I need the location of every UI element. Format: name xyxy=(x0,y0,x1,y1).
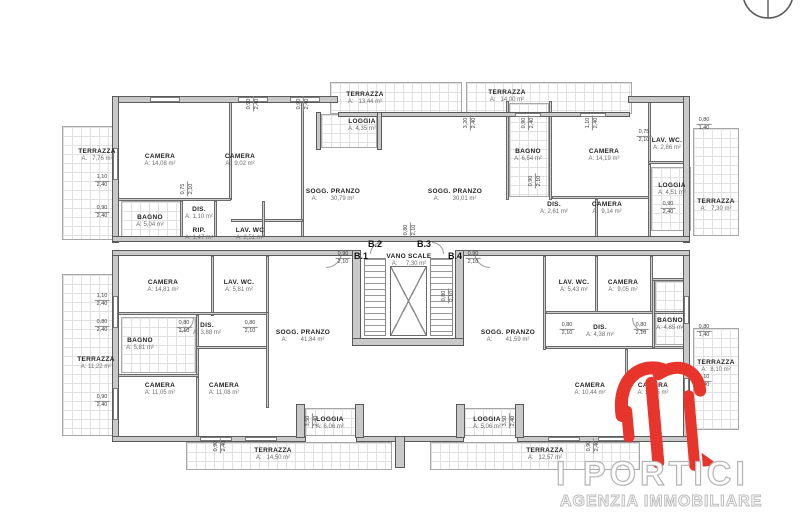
partition-wall xyxy=(546,311,686,314)
room-label: LOGGIAA: 6,06 m² xyxy=(316,416,344,430)
window-marker xyxy=(245,437,277,441)
unit-label: B.4 xyxy=(448,251,462,261)
room-label: VANO SCALEA: 7,30 m² xyxy=(386,253,431,267)
dimension-label: 3,502,40 xyxy=(502,414,516,429)
dimension-width: 0,90 xyxy=(95,205,110,212)
dimension-label: 0,802,10 xyxy=(243,320,258,334)
dimension-width: 0,80 xyxy=(403,223,410,238)
room-area: A: 2,86 m² xyxy=(652,145,683,151)
room-area: A: 41,59 m² xyxy=(481,337,535,343)
room-name: CAMERA xyxy=(225,153,255,160)
room-label: BAGNOA: 5,81 m² xyxy=(126,337,154,351)
dimension-height: 1,40 xyxy=(697,124,712,132)
window-marker xyxy=(684,296,689,324)
dimension-width: 0,90 xyxy=(661,201,676,208)
dimension-height: 2,10 xyxy=(448,289,456,304)
dimension-label: 0,802,10 xyxy=(560,322,575,336)
room-area: A: 30,79 m² xyxy=(306,196,360,202)
room-name: SOGG. PRANZO xyxy=(481,329,535,336)
room-name: LAV. WC. xyxy=(559,279,590,286)
unit-label: B.2 xyxy=(368,239,382,249)
dimension-width: 0,80 xyxy=(441,289,448,304)
room-area: A: 14,08 m² xyxy=(144,161,175,167)
room-name: TERRAZZA xyxy=(78,148,115,155)
room-label: LAV. WC.A: 5,81 m² xyxy=(224,279,255,293)
room-name: TERRAZZA xyxy=(77,356,114,363)
room-label: LOGGIAA: 4,35 m² xyxy=(348,118,376,132)
room-area: A: 9,02 m² xyxy=(225,161,255,167)
dimension-label: 1,102,40 xyxy=(95,293,110,307)
pier xyxy=(355,404,364,438)
room-name: LAV. WC. xyxy=(652,137,683,144)
dimension-label: 0,902,40 xyxy=(246,97,260,112)
window-marker xyxy=(113,296,118,328)
dimension-height: 2,40 xyxy=(528,116,536,131)
stair-core-wall xyxy=(352,250,361,346)
dimension-label: 0,902,10 xyxy=(336,251,351,265)
dimension-height: 2,10 xyxy=(560,329,575,337)
agency-logo-title: I PORTICI xyxy=(556,455,749,494)
dimension-height: 2,40 xyxy=(303,97,311,112)
room-name: SOGG. PRANZO xyxy=(306,188,360,195)
room-area: A: 11,08 m² xyxy=(209,390,240,396)
dimension-width: 0,75 xyxy=(180,182,187,197)
dimension-width: 0,80 xyxy=(560,322,575,329)
room-label: SOGG. PRANZOA: 30,79 m² xyxy=(306,188,360,202)
stair-flight xyxy=(364,258,386,336)
room-area: A: 14,81 m² xyxy=(147,287,178,293)
dimension-width: 0,75 xyxy=(637,129,652,136)
room-label: DIS.A: 3,88 m² xyxy=(193,322,221,336)
partition-wall xyxy=(595,256,598,313)
dimension-height: 2,10 xyxy=(243,327,258,335)
room-label: CAMERAA: 9,02 m² xyxy=(225,153,255,167)
room-name: CAMERA xyxy=(574,382,605,389)
room-label: BAGNOA: 4,85 m² xyxy=(656,317,684,331)
room-area: A: 14,19 m² xyxy=(588,156,619,162)
room-area: A: 4,85 m² xyxy=(656,325,684,331)
dimension-label: 1,102,40 xyxy=(585,116,599,131)
room-name: TERRAZZA xyxy=(346,91,383,98)
partition-wall xyxy=(231,219,303,222)
dimension-label: 0,902,40 xyxy=(661,201,676,215)
room-label: TERRAZZAA: 14,00 m² xyxy=(488,89,525,103)
room-name: DIS. xyxy=(193,322,221,329)
dimension-label: 0,902,40 xyxy=(296,97,310,112)
room-label: DIS.A: 4,38 m² xyxy=(586,324,614,338)
room-name: VANO SCALE xyxy=(386,253,431,260)
room-label: BAGNOA: 5,04 m² xyxy=(136,214,164,228)
room-name: BAGNO xyxy=(656,317,684,324)
room-area: A: 6,06 m² xyxy=(316,424,344,430)
pier xyxy=(296,404,305,438)
dimension-label: 0,802,10 xyxy=(441,289,455,304)
dimension-width: 3,50 xyxy=(502,414,509,429)
dimension-height: 2,40 xyxy=(220,439,228,454)
dimension-width: 0,90 xyxy=(528,174,535,189)
room-name: DIS. xyxy=(586,324,614,331)
room-area: A: 10,44 m² xyxy=(574,390,605,396)
dimension-width: 0,80 xyxy=(177,320,192,327)
dimension-height: 2,10 xyxy=(336,258,351,266)
partition-wall xyxy=(214,201,217,238)
room-name: TERRAZZA xyxy=(488,89,525,96)
room-area: A: 4,38 m² xyxy=(586,332,614,338)
dimension-width: 0,90 xyxy=(95,394,110,401)
room-name: LOGGIA xyxy=(348,118,376,125)
dimension-width: 0,90 xyxy=(336,251,351,258)
dimension-width: 0,80 xyxy=(697,324,712,331)
partition-wall xyxy=(211,256,214,316)
dimension-height: 2,40 xyxy=(95,326,110,334)
floor-plan-canvas: TERRAZZAA. 7,76 m²CAMERAA: 14,08 m²CAMER… xyxy=(0,0,800,526)
room-area: A: 5,81 m² xyxy=(126,345,154,351)
room-name: BAGNO xyxy=(514,148,542,155)
dimension-label: 0,902,40 xyxy=(95,205,110,219)
dimension-height: 2,10 xyxy=(637,136,652,144)
dimension-label: 0,902,10 xyxy=(466,251,481,265)
dimension-width: 0,90 xyxy=(213,439,220,454)
room-label: CAMERAA: 14,08 m² xyxy=(144,153,175,167)
dimension-label: 1,102,40 xyxy=(95,174,110,188)
room-name: DIS. xyxy=(185,206,213,213)
room-label: BAGNOA: 6,54 m² xyxy=(514,148,542,162)
dimension-label: 0,802,40 xyxy=(95,319,110,333)
dimension-width: 0,90 xyxy=(586,439,593,454)
room-label: LAV. WC.A: 5,43 m² xyxy=(559,279,590,293)
room-area: A: 7,30 m² xyxy=(386,261,431,267)
dimension-label: 3,202,40 xyxy=(463,116,477,131)
partition-wall xyxy=(266,312,269,408)
pier xyxy=(456,404,465,438)
room-name: LOGGIA xyxy=(473,416,501,423)
room-label: SOGG. PRANZOA: 41,59 m² xyxy=(481,329,535,343)
exterior-wall xyxy=(395,436,405,468)
room-area: A: 3,88 m² xyxy=(193,330,221,336)
room-name: CAMERA xyxy=(588,148,619,155)
room-label: CAMERAA: 11,08 m² xyxy=(209,382,240,396)
partition-wall xyxy=(196,346,269,349)
north-indicator-icon xyxy=(740,0,796,21)
room-area: A: 2,51 m² xyxy=(236,235,264,241)
room-area: A: 4,51 m² xyxy=(658,190,686,196)
room-area: A: 11,22 m² xyxy=(77,364,114,370)
stair-core-wall xyxy=(455,250,464,346)
partition-wall xyxy=(118,312,269,315)
room-name: LAV. WC. xyxy=(224,279,255,286)
dimension-label: 0,801,40 xyxy=(697,324,712,338)
room-label: CAMERAA: 14,81 m² xyxy=(147,279,178,293)
room-area: A: 5,04 m² xyxy=(136,222,164,228)
room-label: LOGGIAA: 4,51 m² xyxy=(658,182,686,196)
pier xyxy=(515,404,524,438)
room-area: A: 11,05 m² xyxy=(145,390,176,396)
elevator-shaft xyxy=(390,266,427,336)
terrace-area xyxy=(693,128,739,236)
partition-wall xyxy=(196,377,199,438)
room-label: LAV. WC.A: 2,86 m² xyxy=(652,137,683,151)
partition-wall xyxy=(652,278,686,281)
partition-wall xyxy=(229,101,232,200)
dimension-height: 2,10 xyxy=(466,258,481,266)
room-label: TERRAZZAA: 11,22 m² xyxy=(77,356,114,370)
dimension-label: 0,801,40 xyxy=(697,117,712,131)
room-label: CAMERAA: 14,19 m² xyxy=(588,148,619,162)
room-label: TERRAZZAA: 14,50 m² xyxy=(254,447,291,461)
partition-wall xyxy=(180,201,183,238)
dimension-height: 2,10 xyxy=(535,174,543,189)
room-area: A: 9,14 m² xyxy=(592,209,622,215)
dimension-height: 2,40 xyxy=(593,439,601,454)
room-name: TERRAZZA xyxy=(254,447,291,454)
room-area: A: 14,00 m² xyxy=(488,97,525,103)
room-label: TERRAZZAA: 13,44 m² xyxy=(346,91,383,105)
room-area: A: 9,05 m² xyxy=(608,287,638,293)
door-swing-arc xyxy=(432,242,444,254)
partition-wall xyxy=(118,374,199,377)
room-area: A: 30,01 m² xyxy=(428,196,482,202)
room-label: SOGG. PRANZOA: 30,01 m² xyxy=(428,188,482,202)
dimension-height: 2,10 xyxy=(187,182,195,197)
dimension-height: 2,40 xyxy=(253,97,261,112)
room-name: LOGGIA xyxy=(316,416,344,423)
partition-wall xyxy=(266,256,269,316)
room-area: A: 2,61 m² xyxy=(540,209,568,215)
dimension-width: 0,80 xyxy=(243,320,258,327)
room-label: DIS.A: 1,10 m² xyxy=(185,206,213,220)
room-name: SOGG. PRANZO xyxy=(428,188,482,195)
room-label: CAMERAA: 9,14 m² xyxy=(592,201,622,215)
room-label: TERRAZZAA: 7,30 m² xyxy=(697,198,734,212)
corridor-wall xyxy=(112,250,357,256)
dimension-height: 2,40 xyxy=(661,208,676,216)
room-label: TERRAZZAA. 7,76 m² xyxy=(78,148,115,162)
dimension-height: 2,40 xyxy=(470,116,478,131)
stair-core-wall xyxy=(352,338,464,346)
dimension-height: 1,40 xyxy=(697,331,712,339)
dimension-label: 0,752,10 xyxy=(637,129,652,143)
dimension-height: 2,40 xyxy=(95,401,110,409)
dimension-label: 0,902,40 xyxy=(586,439,600,454)
dimension-height: 2,40 xyxy=(592,116,600,131)
unit-label: B.3 xyxy=(417,239,431,249)
unit-label: B.1 xyxy=(354,251,368,261)
dimension-width: 1,10 xyxy=(95,293,110,300)
room-name: TERRAZZA xyxy=(697,198,734,205)
dimension-width: 0,90 xyxy=(246,97,253,112)
window-marker xyxy=(150,97,180,102)
room-area: A: 14,50 m² xyxy=(254,455,291,461)
window-marker xyxy=(113,388,118,420)
partition-wall xyxy=(543,256,546,350)
dimension-label: 0,802,10 xyxy=(177,320,192,334)
room-area: A: 41,84 m² xyxy=(276,337,330,343)
room-name: RIP. xyxy=(185,227,213,234)
room-area: A: 5,43 m² xyxy=(559,287,590,293)
dimension-label: 0,802,10 xyxy=(403,223,417,238)
room-area: A: 4,35 m² xyxy=(348,126,376,132)
dimension-width: 3,50 xyxy=(305,414,312,429)
room-label: RIP.A: 1,47 m² xyxy=(185,227,213,241)
room-area: A. 7,76 m² xyxy=(78,156,115,162)
room-label: DIS.A: 2,61 m² xyxy=(540,201,568,215)
partition-wall xyxy=(552,196,650,199)
dimension-width: 1,10 xyxy=(585,116,592,131)
room-label: CAMERAA: 10,44 m² xyxy=(574,382,605,396)
exterior-wall xyxy=(683,96,690,243)
dimension-width: 0,90 xyxy=(466,251,481,258)
loggia-side-wall xyxy=(377,112,382,150)
room-area: A: 5,06 m² xyxy=(473,424,501,430)
room-label: SOGG. PRANZOA: 41,84 m² xyxy=(276,329,330,343)
agency-logo-subtitle: AGENZIA IMMOBILIARE xyxy=(560,493,762,511)
room-name: DIS. xyxy=(540,201,568,208)
room-label: LAV. WCA: 2,51 m² xyxy=(236,227,264,241)
dimension-label: 0,752,10 xyxy=(180,182,194,197)
room-area: A: 5,81 m² xyxy=(224,287,255,293)
room-name: CAMERA xyxy=(147,279,178,286)
dimension-width: 0,90 xyxy=(521,116,528,131)
dimension-width: 0,80 xyxy=(634,322,649,329)
dimension-width: 0,80 xyxy=(697,117,712,124)
partition-wall xyxy=(648,164,651,238)
partition-wall xyxy=(652,278,655,348)
room-name: CAMERA xyxy=(145,382,176,389)
room-area: A: 13,44 m² xyxy=(346,99,383,105)
window-marker xyxy=(548,437,580,441)
dimension-height: 2,40 xyxy=(95,181,110,189)
loggia-side-wall xyxy=(316,112,321,150)
room-name: CAMERA xyxy=(608,279,638,286)
room-name: CAMERA xyxy=(592,201,622,208)
dimension-label: 0,902,40 xyxy=(213,439,227,454)
room-label: CAMERAA: 11,05 m² xyxy=(145,382,176,396)
dimension-height: 2,10 xyxy=(177,327,192,335)
dimension-width: 1,10 xyxy=(95,174,110,181)
dimension-height: 2,10 xyxy=(410,223,418,238)
room-name: SOGG. PRANZO xyxy=(276,329,330,336)
room-area: A: 1,47 m² xyxy=(185,235,213,241)
dimension-width: 3,20 xyxy=(463,116,470,131)
dimension-height: 2,40 xyxy=(95,300,110,308)
dimension-label: 0,802,10 xyxy=(634,322,649,336)
room-area: A: 6,54 m² xyxy=(514,156,542,162)
room-area: A: 1,10 m² xyxy=(185,214,213,220)
room-label: LOGGIAA: 5,06 m² xyxy=(473,416,501,430)
room-name: BAGNO xyxy=(126,337,154,344)
room-name: BAGNO xyxy=(136,214,164,221)
dimension-height: 2,40 xyxy=(95,212,110,220)
partition-wall xyxy=(301,101,304,238)
dimension-label: 0,902,40 xyxy=(521,116,535,131)
dimension-label: 0,902,10 xyxy=(528,174,542,189)
dimension-height: 2,40 xyxy=(509,414,517,429)
room-name: LOGGIA xyxy=(658,182,686,189)
room-label: CAMERAA: 9,05 m² xyxy=(608,279,638,293)
corridor-wall xyxy=(458,250,690,256)
room-name: TERRAZZA xyxy=(526,447,563,454)
room-name: CAMERA xyxy=(209,382,240,389)
dimension-width: 0,90 xyxy=(296,97,303,112)
room-name: LAV. WC xyxy=(236,227,264,234)
exterior-wall xyxy=(356,436,464,442)
dimension-label: 0,902,40 xyxy=(95,394,110,408)
dimension-width: 0,80 xyxy=(95,319,110,326)
exterior-wall xyxy=(628,96,690,103)
room-name: CAMERA xyxy=(144,153,175,160)
dimension-height: 2,10 xyxy=(634,329,649,337)
room-area: A: 7,30 m² xyxy=(697,206,734,212)
